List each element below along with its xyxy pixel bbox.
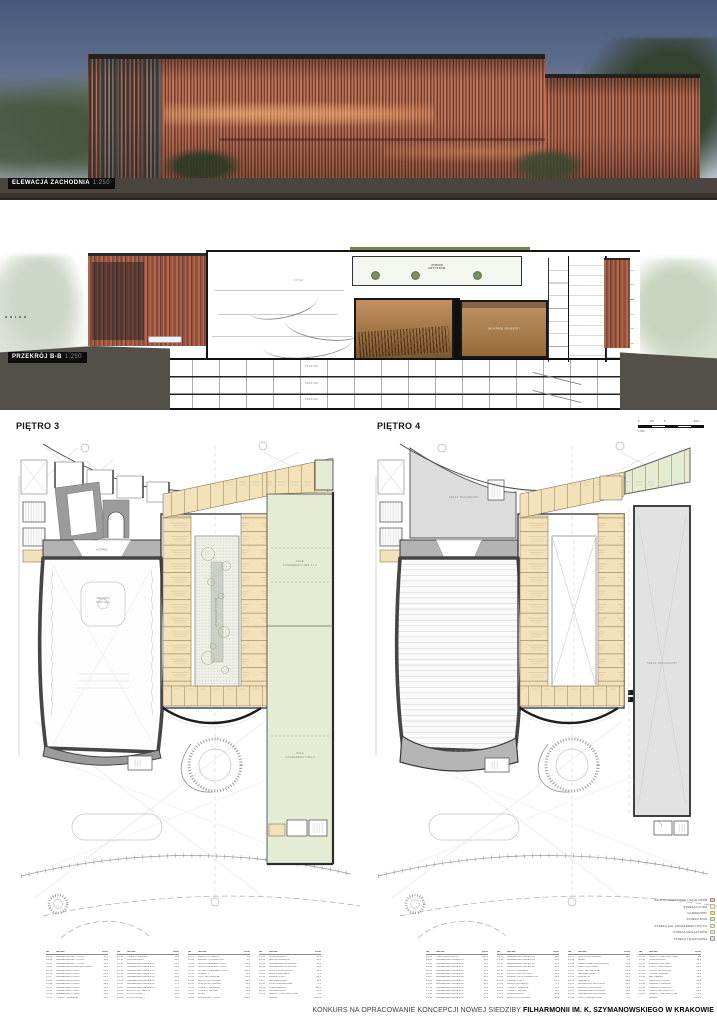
ground-band: ELEWACJA ZACHODNIA 1:250 xyxy=(0,178,717,200)
legend-label: GARDEROBY xyxy=(687,911,707,915)
competition-board: ELEWACJA ZACHODNIA 1:250 FOYER xyxy=(0,0,717,1024)
terrace-top-label: TARAS TECHNICZNY xyxy=(449,495,480,499)
schedule-column-group: NR NAZWA POW. P3.27ANEKS KUCHENNY8,6P3.2… xyxy=(188,951,250,1000)
schedule-header: NR NAZWA POW. xyxy=(117,951,179,955)
legend-item: STREFA TECHNICZNA xyxy=(598,935,715,941)
glass-facade-block xyxy=(89,59,161,178)
atrium-void xyxy=(552,536,596,686)
legend-color-chip xyxy=(710,898,715,902)
footer-title: KONKURS NA OPRACOWANIE KONCEPCJI NOWEJ S… xyxy=(312,1007,714,1014)
table-row: RAZEM1 654,8 xyxy=(639,997,701,1000)
hall-label-line1: WIDOWNIA xyxy=(97,597,110,600)
schedule-column-group: NR NAZWA POW. P3.40KOMUNIKACJA64,2P3.41B… xyxy=(259,951,321,1000)
hall-label-line2: DUŻA SALA xyxy=(96,601,110,604)
scale-tick: 5 xyxy=(664,420,665,423)
interior-light-glow xyxy=(164,100,434,128)
table-row: P4.13GARDEROBA ORKIESTRY15,2 xyxy=(426,997,488,1000)
section-elevation-fragment-left xyxy=(88,256,206,346)
plan-title-pietro-3: PIĘTRO 3 xyxy=(16,421,59,431)
legend-label: SALE KONCERTOWE I SALE PRÓB xyxy=(654,898,707,902)
conference-upper-label1: SALE xyxy=(296,559,304,563)
elevation-caption-label: ELEWACJA ZACHODNIA xyxy=(12,180,90,187)
table-row: P3.13TOALETY DAMSKIE12,4 xyxy=(46,997,108,1000)
green-roof-line xyxy=(350,247,530,250)
foyer-label: FOYER xyxy=(294,280,303,282)
schedule-header: NR NAZWA POW. xyxy=(188,951,250,955)
main-hall: WIDOWNIA DUŻA SALA xyxy=(40,558,165,770)
section-drawing: FOYER ATRIUM ARTYSTÓW SALA PRÓB ORKIESTR… xyxy=(0,200,717,420)
technical-terrace-top: TARAS TECHNICZNY xyxy=(410,448,516,538)
top-right-rooms xyxy=(267,458,333,494)
foyer-curved-wall xyxy=(520,708,618,727)
west-stair-rooms xyxy=(380,502,402,562)
west-elevation-render: ELEWACJA ZACHODNIA 1:250 xyxy=(0,0,717,200)
legend-label: STREFA MAGAZYNÓW xyxy=(673,930,707,934)
terrace-right-label: TARAS TECHNICZNY xyxy=(647,661,678,665)
building-copper-facade xyxy=(88,54,545,178)
conference-lower-label2: KONFERENCYJNA 3 xyxy=(285,755,315,759)
scale-tick: 2,5 xyxy=(650,420,654,423)
atrium-label-line2: ARTYSTÓW xyxy=(428,267,445,270)
section-stair-shaft xyxy=(568,256,606,362)
legend-color-chip xyxy=(710,904,715,908)
elevation-caption: ELEWACJA ZACHODNIA 1:250 xyxy=(8,178,115,189)
plan-title-pietro-4: PIĘTRO 4 xyxy=(377,421,420,431)
stage-zone xyxy=(400,540,518,558)
scale-bar-ratio: 1:250 xyxy=(638,430,645,433)
slab-line xyxy=(214,290,344,291)
section-building-body: FOYER ATRIUM ARTYSTÓW SALA PRÓB ORKIESTR… xyxy=(206,250,640,360)
legend-color-chip xyxy=(710,924,715,928)
legend-label: STREFA FOYER xyxy=(683,905,707,909)
entrance-canopy-sign xyxy=(148,336,182,343)
parking-ramp-line xyxy=(533,390,582,403)
section-elevation-fragment-right xyxy=(604,258,630,348)
ground-mass-right xyxy=(620,350,717,410)
section-caption: PRZEKRÓJ B-B 1:250 xyxy=(8,352,87,363)
schedule-column-group: NR NAZWA POW. P3.01GARDEROBA ARTYSTÓW18,… xyxy=(46,951,108,1000)
footer-bold-text: FILHARMONII IM. K. SZYMANOWSKIEGO W KRAK… xyxy=(523,1007,714,1014)
section-rehearsal-hall: SALA PRÓB ORKIESTRY xyxy=(460,300,548,358)
section-caption-label: PRZEKRÓJ B-B xyxy=(12,354,62,361)
conference-lower-label1: SALA xyxy=(296,751,304,755)
parking-label: PARKING xyxy=(305,398,318,401)
legend-color-chip xyxy=(710,936,715,940)
schedule-column-group: NR NAZWA POW. P4.40SZACHTY INSTALACYJNE9… xyxy=(639,951,701,1000)
legend-label: STREFA SAL KONFERENCYJNYCH xyxy=(655,924,708,928)
section-parking-levels: PARKING PARKING PARKING xyxy=(165,358,642,410)
table-row: P3.26POKÓJ SOLISTY14,2 xyxy=(117,997,179,1000)
conference-upper-label2: KONFERENCYJNE 1 I 2 xyxy=(283,563,318,567)
parking-label: PARKING xyxy=(305,382,318,385)
legend-color-chip xyxy=(710,911,715,915)
scale-tick: 10 m xyxy=(694,420,700,423)
section-main-hall xyxy=(354,298,454,360)
table-row: P3.39ATRIUM ARTYSTÓW186,0 xyxy=(188,997,250,1000)
schedule-header: NR NAZWA POW. xyxy=(426,951,488,955)
legend: SALE KONCERTOWE I SALE PRÓB STREFA FOYER… xyxy=(598,897,715,942)
entrance-spiral-stair xyxy=(538,739,598,792)
artist-atrium-courtyard: ATRIUM ARTYSTÓW xyxy=(195,536,239,686)
conference-zone: SALE KONFERENCYJNE 1 I 2 SALA KONFERENCY… xyxy=(267,492,333,864)
legend-label: STREFA BIUR xyxy=(687,917,708,921)
foyer-stair-arc xyxy=(262,323,355,362)
schedule-header: NR NAZWA POW. xyxy=(568,951,630,955)
table-row: P4.39POM. PORZĄDKOWE6,4 xyxy=(568,997,630,1000)
table-row: P4.26KLATKA SCHODOWA18,6 xyxy=(497,997,559,1000)
floor-plan-pietro-3: ESTRADA WIDOWNIA DUŻA SALA xyxy=(15,436,360,946)
service-rooms-column xyxy=(548,258,568,362)
schedule-header: NR NAZWA POW. xyxy=(639,951,701,955)
floor-shadow-line xyxy=(219,138,549,141)
tree-icon xyxy=(473,271,482,280)
scale-tick: 0 xyxy=(638,420,639,423)
schedule-column-group: NR NAZWA POW. P4.01TARAS TECHNICZNY385,0… xyxy=(426,951,488,1000)
floor-plan-pietro-4: TARAS TECHNICZNY BALKON TECHNIC xyxy=(372,436,717,946)
tree-icon xyxy=(411,271,420,280)
west-stair-rooms xyxy=(23,502,45,562)
table-row: RAZEM1 842,6 xyxy=(259,997,321,1000)
schedule-column-group: NR NAZWA POW. P4.14GARDEROBA ORKIESTRY15… xyxy=(497,951,559,1000)
elevation-caption-scale: 1:250 xyxy=(93,180,110,187)
schedule-header: NR NAZWA POW. xyxy=(46,951,108,955)
page-marker-dots xyxy=(5,316,26,318)
section-caption-scale: 1:250 xyxy=(65,354,82,361)
room-schedule-pietro-3: NR NAZWA POW. P3.01GARDEROBA ARTYSTÓW18,… xyxy=(46,951,321,1000)
entrance-spiral-stair xyxy=(181,739,241,792)
schedule-header: NR NAZWA POW. xyxy=(259,951,321,955)
technical-terrace-right: TARAS TECHNICZNY xyxy=(629,506,690,835)
legend-label: STREFA TECHNICZNA xyxy=(674,937,708,941)
parking-label: PARKING xyxy=(305,365,318,368)
rehearsal-hall-label: SALA PRÓB ORKIESTRY xyxy=(488,328,521,331)
foyer-curved-wall xyxy=(163,708,261,727)
atrium-label: ATRIUM ARTYSTÓW xyxy=(428,264,445,271)
stage-label: ESTRADA xyxy=(96,549,108,552)
balcony-label: BALKON TECHNICZNY xyxy=(443,750,469,753)
faint-tree-right xyxy=(630,258,717,363)
footer-regular-text: KONKURS NA OPRACOWANIE KONCEPCJI NOWEJ S… xyxy=(312,1007,521,1014)
legend-color-chip xyxy=(710,930,715,934)
section-atrium: ATRIUM ARTYSTÓW xyxy=(352,256,522,286)
tree-icon xyxy=(371,271,380,280)
legend-color-chip xyxy=(710,917,715,921)
scale-bar-segments xyxy=(638,425,704,428)
schedule-header: NR NAZWA POW. xyxy=(497,951,559,955)
main-hall-balcony-level: BALKON TECHNICZNY xyxy=(397,558,522,772)
schedule-column-group: NR NAZWA POW. P3.14TOALETY MĘSKIE12,4P3.… xyxy=(117,951,179,1000)
room-schedule-pietro-4: NR NAZWA POW. P4.01TARAS TECHNICZNY385,0… xyxy=(426,951,701,1000)
stage-zone: ESTRADA xyxy=(43,540,161,558)
parking-ramp-line xyxy=(533,372,582,385)
schedule-column-group: NR NAZWA POW. P4.27KLATKA SCHODOWA18,6P4… xyxy=(568,951,630,1000)
